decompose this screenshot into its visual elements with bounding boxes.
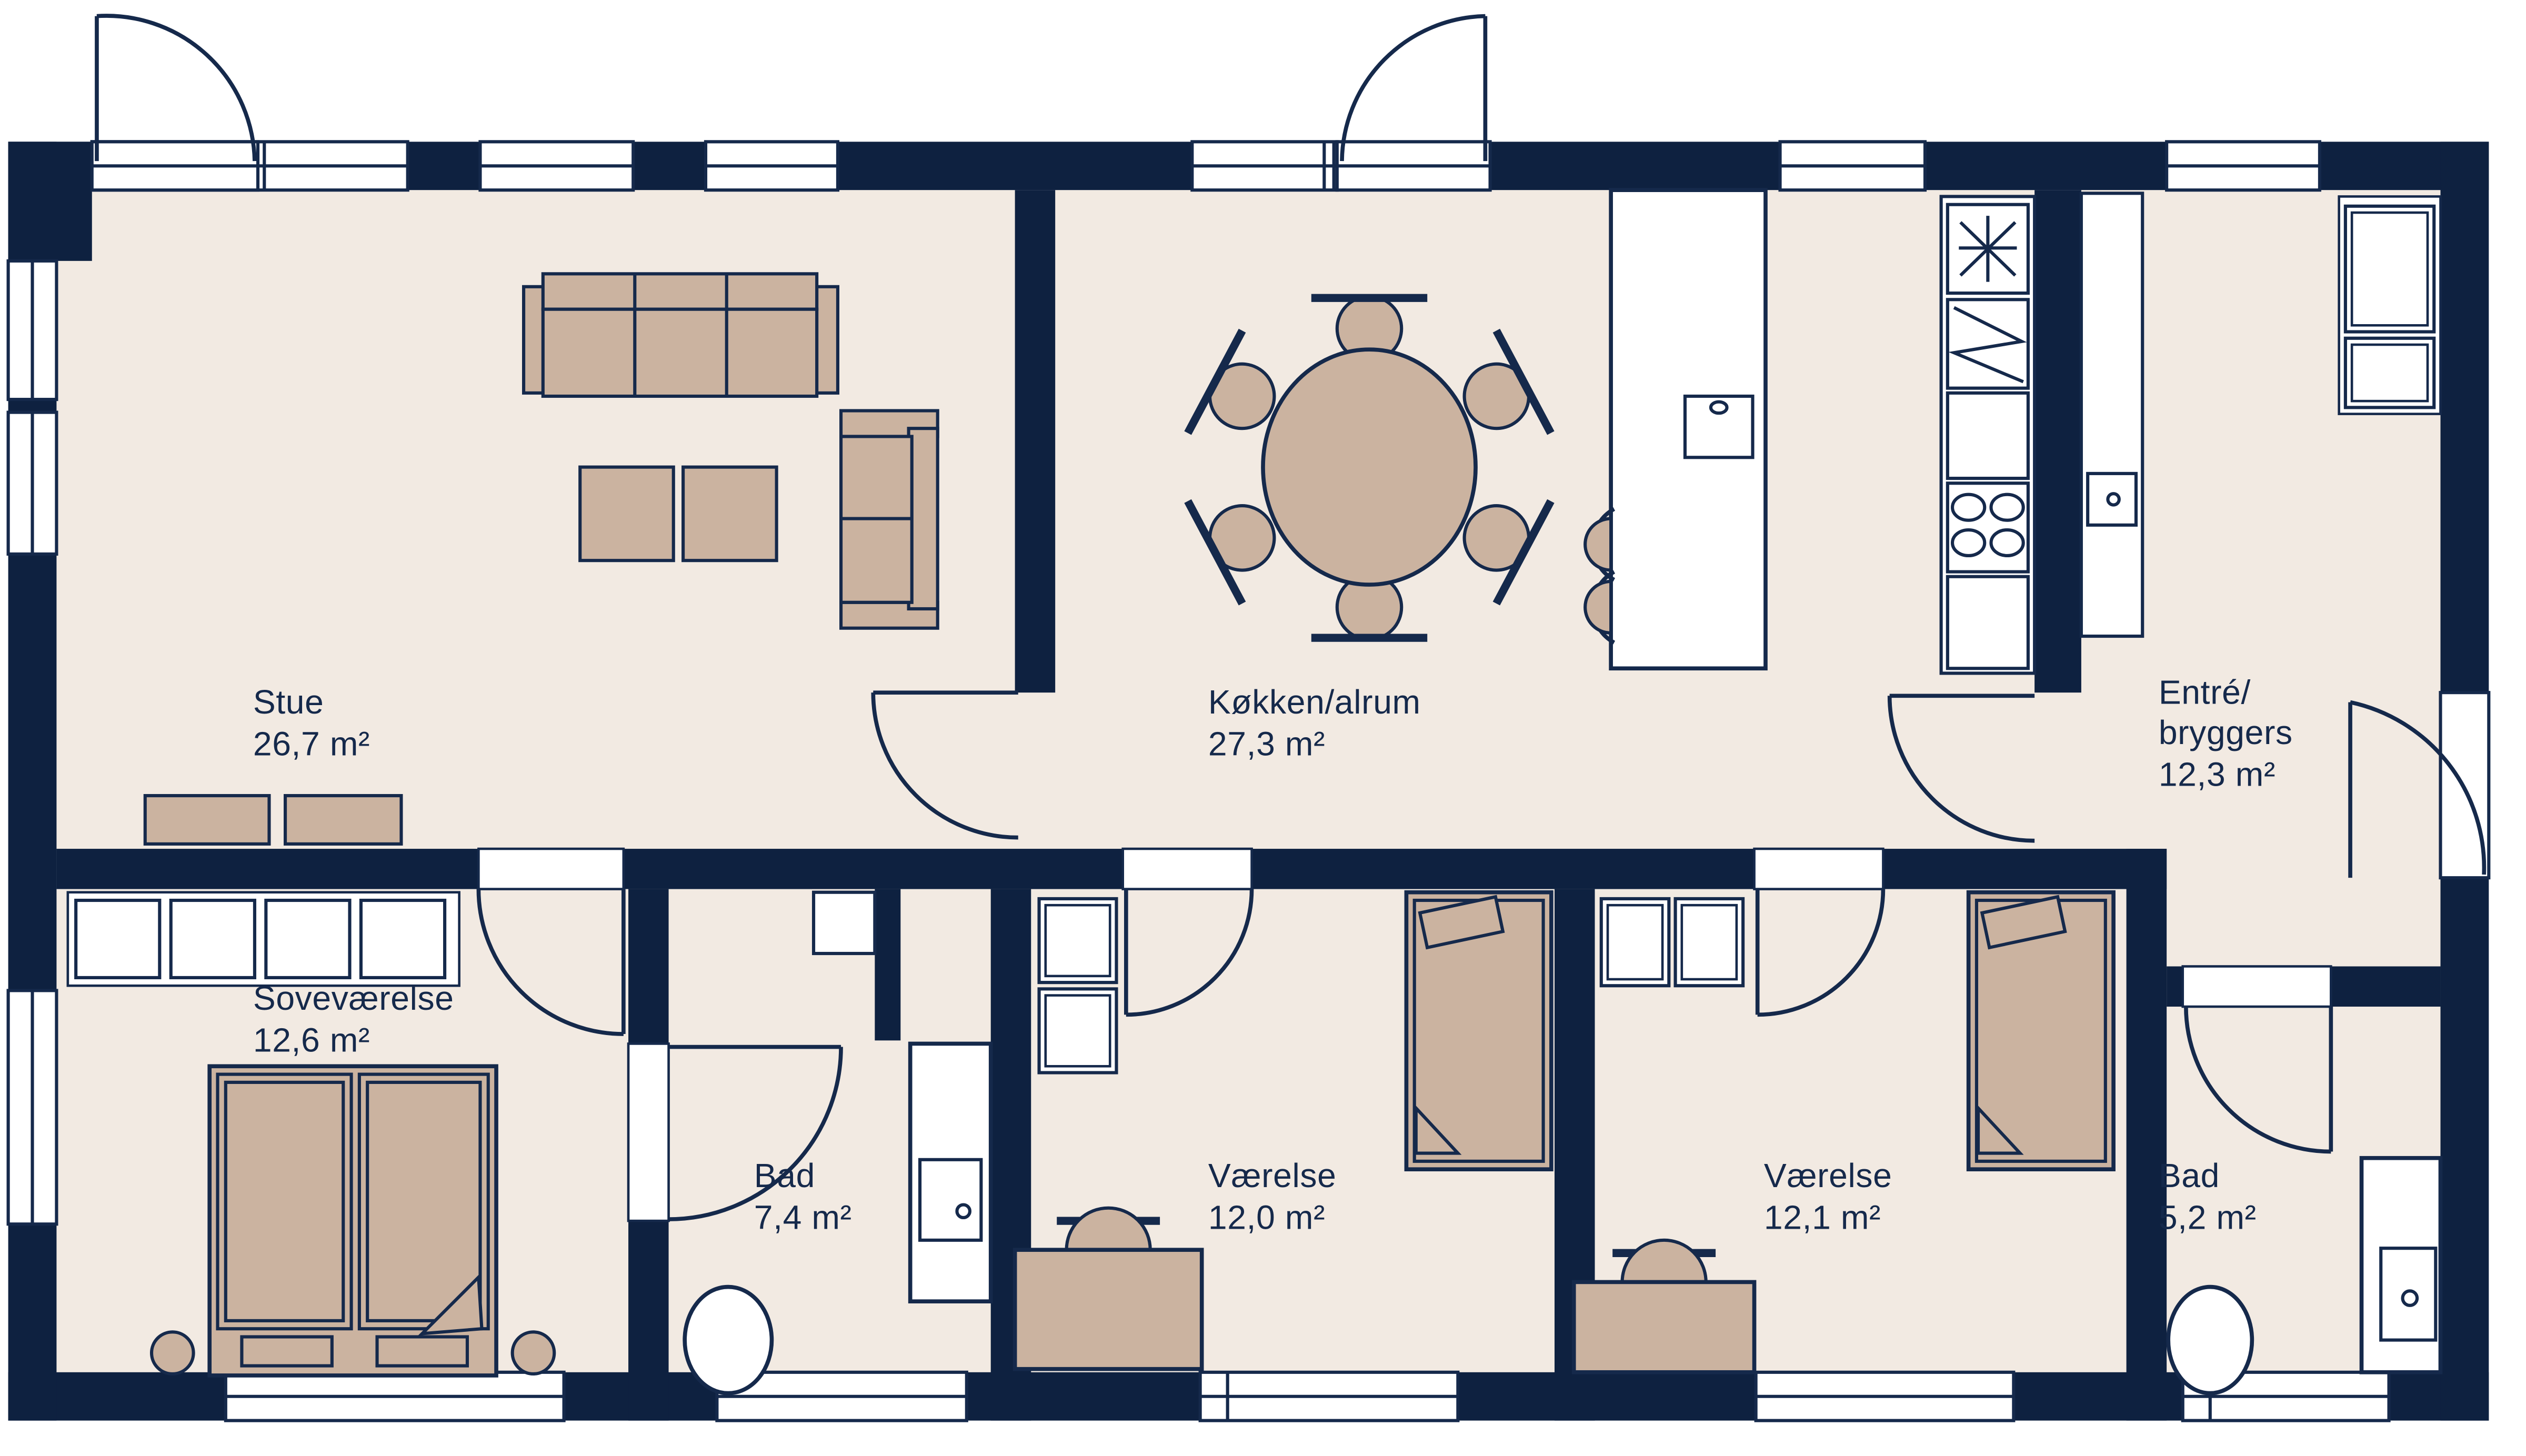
sofa-2seat bbox=[841, 411, 938, 628]
wall-kokken-entre bbox=[2034, 190, 2081, 692]
label-entre-area: 12,3 m² bbox=[2159, 756, 2276, 794]
wall-stub-bad1 bbox=[875, 889, 900, 1041]
door-terrace-stue bbox=[92, 16, 258, 190]
window-bottom-vaerelse1 bbox=[1200, 1372, 1458, 1421]
label-kokken: Køkken/alrum bbox=[1208, 683, 1421, 721]
label-sovevaerelse-area: 12,6 m² bbox=[253, 1021, 370, 1059]
window-top-stue-2 bbox=[480, 142, 633, 190]
pillow bbox=[242, 1337, 332, 1365]
toilet-bad1 bbox=[685, 1287, 771, 1393]
window-left-sovevaerelse bbox=[8, 990, 57, 1224]
window-left-stue-2 bbox=[8, 413, 57, 554]
bedside-stool bbox=[152, 1332, 194, 1374]
faucet-bad2 bbox=[2403, 1291, 2418, 1306]
window-top-stue-3 bbox=[706, 142, 838, 190]
kitchen-appliance-column bbox=[1941, 196, 2035, 673]
single-bed-vaerelse1 bbox=[1406, 892, 1551, 1169]
wall-corner-topleft bbox=[8, 142, 92, 261]
window-top-kokken-2 bbox=[1780, 142, 1925, 190]
sideboard-1 bbox=[145, 796, 269, 844]
label-entre-1: Entré/ bbox=[2159, 674, 2251, 711]
window-top-entre bbox=[2167, 142, 2320, 190]
label-entre-2: bryggers bbox=[2159, 714, 2293, 751]
bryggers-faucet bbox=[2108, 494, 2119, 505]
window-bottom-vaerelse2 bbox=[1756, 1372, 2014, 1421]
sideboard-2 bbox=[285, 796, 401, 844]
single-bed-vaerelse2 bbox=[1969, 892, 2113, 1169]
island-faucet bbox=[1711, 402, 1727, 413]
vanity-bad2 bbox=[2361, 1158, 2440, 1372]
bedroom-wardrobe bbox=[68, 892, 459, 986]
cooktop-icon bbox=[1948, 483, 2028, 571]
coffee-table-1 bbox=[580, 467, 674, 561]
kitchen-counter-segment bbox=[1948, 577, 2028, 668]
window-bottom-sovevaerelse bbox=[226, 1372, 564, 1421]
sink-bad1 bbox=[920, 1160, 981, 1240]
door-terrace-kokken bbox=[1337, 16, 1490, 190]
entre-wardrobe bbox=[2339, 196, 2441, 414]
bedside-stool bbox=[513, 1332, 555, 1374]
label-bad1-area: 7,4 m² bbox=[754, 1198, 852, 1236]
label-bad2-area: 5,2 m² bbox=[2159, 1198, 2257, 1236]
label-bad1: Bad bbox=[754, 1157, 815, 1194]
label-vaerelse1-area: 12,0 m² bbox=[1208, 1198, 1325, 1236]
window-top-kokken-1 bbox=[1192, 142, 1337, 190]
label-vaerelse2: Værelse bbox=[1764, 1157, 1892, 1194]
floor-plan-svg: Stue 26,7 m² Køkken/alrum 27,3 m² Entré/… bbox=[0, 0, 2526, 1456]
sofa-3seat bbox=[524, 274, 838, 396]
wall-vaerelse2-bad2 bbox=[2127, 849, 2167, 1421]
window-left-stue-1 bbox=[8, 261, 57, 399]
pillow bbox=[377, 1337, 467, 1365]
label-vaerelse2-area: 12,1 m² bbox=[1764, 1198, 1881, 1236]
vanity-bad1 bbox=[910, 1043, 991, 1301]
wall-stue-kokken bbox=[1015, 190, 1056, 692]
label-bad2: Bad bbox=[2159, 1157, 2220, 1194]
dining-table bbox=[1263, 349, 1476, 585]
kitchen-island bbox=[1585, 190, 1766, 668]
kitchen-counter-segment bbox=[1948, 393, 2028, 478]
label-stue: Stue bbox=[253, 683, 324, 721]
label-stue-area: 26,7 m² bbox=[253, 725, 370, 763]
label-kokken-area: 27,3 m² bbox=[1208, 725, 1325, 763]
toilet-bad2 bbox=[2168, 1287, 2252, 1393]
coffee-table-2 bbox=[683, 467, 777, 561]
label-vaerelse1: Værelse bbox=[1208, 1157, 1337, 1194]
shower-niche bbox=[814, 892, 875, 953]
bryggers-counter bbox=[2081, 193, 2142, 636]
faucet-bad1 bbox=[957, 1205, 969, 1218]
label-sovevaerelse: Soveværelse bbox=[253, 979, 454, 1017]
double-bed bbox=[209, 1066, 496, 1375]
floor-plan-page: Stue 26,7 m² Køkken/alrum 27,3 m² Entré/… bbox=[0, 0, 2526, 1456]
